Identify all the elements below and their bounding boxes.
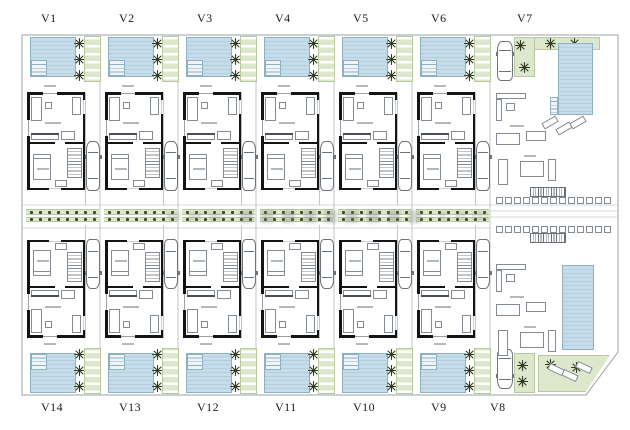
plot-microtext (278, 343, 290, 345)
deck-pergola (474, 348, 491, 394)
plot-v9 (412, 225, 490, 395)
house-floor-plan (27, 92, 85, 190)
car-rear-window (322, 251, 332, 252)
shrub-icon (30, 218, 33, 221)
room-label-microtext (193, 260, 205, 262)
pool-steps (421, 60, 437, 76)
pergola-tile (595, 197, 602, 204)
shrub-icon (75, 211, 78, 214)
car-icon (164, 239, 178, 289)
deck-pergola (84, 348, 101, 394)
kitchen-counter-top (343, 295, 371, 297)
palm-tree-icon (514, 39, 527, 52)
tv-cabinet (384, 315, 393, 333)
plot-contents (22, 225, 100, 395)
room-label-microtext (45, 306, 61, 308)
car-icon (86, 239, 100, 289)
sun-lounger (541, 115, 558, 129)
window (199, 92, 213, 95)
car-mirror (475, 155, 477, 159)
car-mirror (496, 52, 498, 56)
car-windshield (88, 277, 98, 278)
interior-wall (261, 286, 289, 288)
watermark: www.■■■■■■■■■.com (166, 206, 494, 226)
shrub-icon (162, 211, 165, 214)
plot-label-v7: V7 (517, 12, 557, 26)
coffee-table (201, 321, 208, 328)
car-rear-window (499, 71, 511, 72)
bed-pillow (345, 154, 363, 159)
pool-steps (109, 354, 125, 370)
sofa (109, 97, 120, 121)
dining-table (520, 161, 544, 177)
pergola-tile (532, 197, 539, 204)
room-label-microtext (271, 168, 283, 170)
room-label-microtext (510, 125, 524, 127)
tv-cabinet (462, 315, 471, 333)
pergola-tile (514, 197, 521, 204)
plot-contents (178, 225, 256, 395)
room-label-microtext (435, 122, 451, 124)
coffee-table (123, 321, 130, 328)
shrub-icon (30, 211, 33, 214)
car-mirror (397, 271, 399, 275)
plot-label-v6: V6 (431, 12, 471, 26)
car-icon (398, 141, 412, 191)
car-windshield (166, 152, 176, 153)
plot-microtext (278, 85, 290, 87)
room-label-microtext (524, 155, 536, 157)
deck-pergola (396, 36, 413, 82)
room-label-microtext (524, 326, 536, 328)
interior-wall (377, 286, 397, 288)
wardrobe (445, 243, 457, 250)
window (105, 120, 108, 136)
pool-steps (187, 354, 203, 370)
shrub-icon (93, 211, 96, 214)
window (433, 336, 447, 339)
wardrobe (367, 243, 379, 250)
room-label-microtext (193, 168, 205, 170)
coffee-table (201, 102, 208, 109)
car-mirror (85, 155, 87, 159)
deck-pergola (84, 36, 101, 82)
deck-pergola (240, 348, 257, 394)
coffee-table (279, 102, 286, 109)
window (105, 294, 108, 310)
room-label-microtext (45, 122, 61, 124)
shrub-icon (135, 211, 138, 214)
exterior-wall (183, 240, 186, 338)
coffee-table (435, 102, 442, 109)
interior-wall (65, 286, 85, 288)
car-rear-window (478, 178, 488, 179)
staircase (67, 252, 82, 282)
kitchen-counter-top (421, 295, 449, 297)
door-opening (49, 188, 61, 191)
window (261, 294, 264, 310)
window (277, 336, 291, 339)
room-label-microtext (349, 260, 361, 262)
shrub-icon (108, 211, 111, 214)
room-label-microtext (115, 168, 127, 170)
plot-contents (256, 225, 334, 395)
car-rear-window (244, 251, 254, 252)
deck-pergola (318, 36, 335, 82)
plot-label-v11: V11 (275, 401, 315, 415)
plot-contents (22, 35, 100, 205)
tv-cabinet (306, 315, 315, 333)
car-mirror (319, 271, 321, 275)
car-mirror (85, 271, 87, 275)
bed-pillow (423, 271, 441, 276)
exterior-wall (417, 240, 420, 338)
wardrobe (367, 180, 379, 187)
car-windshield (244, 277, 254, 278)
kitchen-counter-top (187, 295, 215, 297)
kitchen-counter-top (31, 133, 59, 135)
wardrobe (211, 243, 223, 250)
car-windshield (166, 277, 176, 278)
exterior-wall (261, 92, 264, 190)
car-rear-window (478, 251, 488, 252)
pool-steps (187, 60, 203, 76)
pool-steps (265, 60, 281, 76)
dining-table (451, 290, 465, 299)
car-icon (476, 239, 490, 289)
dining-table (217, 290, 231, 299)
plot-contents (334, 225, 412, 395)
plot-contents (256, 35, 334, 205)
bed-pillow (267, 271, 285, 276)
sofa (421, 309, 432, 333)
interior-wall (221, 286, 241, 288)
pool-steps (343, 354, 359, 370)
sofa (31, 309, 42, 333)
pool-steps (31, 354, 47, 370)
plot-microtext (356, 343, 368, 345)
house-floor-plan (105, 240, 163, 338)
bed-pillow (111, 154, 129, 159)
room-label-microtext (279, 306, 295, 308)
tv-cabinet (150, 97, 159, 115)
window (43, 336, 57, 339)
plot-v2 (100, 35, 178, 205)
plot-label-v3: V3 (197, 12, 237, 26)
window (43, 92, 57, 95)
window (355, 336, 369, 339)
plot-label-v1: V1 (41, 12, 81, 26)
plot-v3 (178, 35, 256, 205)
pergola-tile (559, 197, 566, 204)
shrub-icon (66, 211, 69, 214)
wardrobe (289, 180, 301, 187)
car-icon (320, 239, 334, 289)
pergola-tile (541, 197, 548, 204)
window (183, 294, 186, 310)
window (339, 294, 342, 310)
plot-contents (178, 35, 256, 205)
exterior-wall (417, 92, 420, 190)
dining-table (61, 131, 75, 140)
staircase (457, 252, 472, 282)
exterior-wall (27, 92, 30, 190)
kitchen-counter-top (109, 295, 137, 297)
coffee-table (45, 102, 52, 109)
plot-v7 (490, 35, 618, 210)
car-rear-window (88, 251, 98, 252)
door-opening (205, 188, 217, 191)
plot-label-v14: V14 (41, 401, 81, 415)
pool-steps (421, 354, 437, 370)
kitchen-island (506, 274, 515, 282)
tv-cabinet (228, 97, 237, 115)
sofa (421, 97, 432, 121)
window (121, 336, 135, 339)
shrub-icon (84, 211, 87, 214)
exterior-wall (339, 240, 342, 338)
exterior-wall (105, 240, 108, 338)
bed-pillow (267, 154, 285, 159)
kitchen-counter-top (343, 133, 371, 135)
dining-table (520, 332, 544, 348)
shrub-icon (39, 211, 42, 214)
wardrobe (55, 180, 67, 187)
kitchen-island (506, 103, 515, 111)
room-label-microtext (123, 122, 139, 124)
door-opening (283, 188, 295, 191)
plot-microtext (122, 85, 134, 87)
plot-contents (490, 35, 618, 210)
wardrobe (211, 180, 223, 187)
plot-microtext (200, 85, 212, 87)
car-windshield (88, 152, 98, 153)
room-label-microtext (123, 306, 139, 308)
car-icon (398, 239, 412, 289)
sofa (265, 309, 276, 333)
exterior-wall (105, 92, 108, 190)
plot-v6 (412, 35, 490, 205)
landscaped-median (26, 217, 99, 223)
plot-contents (334, 35, 412, 205)
house-floor-plan (27, 240, 85, 338)
plot-microtext (434, 343, 446, 345)
car-windshield (244, 152, 254, 153)
car-rear-window (244, 178, 254, 179)
plot-contents (412, 35, 490, 205)
sideboard (498, 159, 508, 185)
interior-wall (455, 286, 475, 288)
window (27, 120, 30, 136)
kitchen-counter-top (421, 133, 449, 135)
house-floor-plan (339, 240, 397, 338)
interior-wall (417, 286, 445, 288)
house-floor-plan (183, 92, 241, 190)
tv-cabinet (72, 315, 81, 333)
shrub-icon (144, 218, 147, 221)
plot-microtext (356, 85, 368, 87)
sofa (265, 97, 276, 121)
coffee-table (279, 321, 286, 328)
dining-table (217, 131, 231, 140)
pergola-tile (496, 197, 503, 204)
shrub-icon (48, 211, 51, 214)
shrub-icon (135, 218, 138, 221)
shrub-icon (117, 211, 120, 214)
car-windshield (400, 277, 410, 278)
dining-table (373, 290, 387, 299)
sofa (343, 309, 354, 333)
deck-pergola (474, 36, 491, 82)
plot-v14 (22, 225, 100, 395)
plot-contents (412, 225, 490, 395)
kitchen-counter-top (31, 295, 59, 297)
staircase (301, 252, 316, 282)
house-floor-plan (261, 92, 319, 190)
plot-v5 (334, 35, 412, 205)
house-floor-plan (261, 240, 319, 338)
plot-label-v5: V5 (353, 12, 393, 26)
car-mirror (241, 271, 243, 275)
shrub-icon (57, 211, 60, 214)
staircase (457, 148, 472, 178)
dining-table (61, 290, 75, 299)
coffee-table (435, 321, 442, 328)
car-rear-window (400, 251, 410, 252)
car-icon (164, 141, 178, 191)
staircase (379, 252, 394, 282)
car-icon (476, 141, 490, 191)
plot-microtext (122, 343, 134, 345)
shrub-icon (108, 218, 111, 221)
room-label-microtext (510, 296, 524, 298)
sofa (109, 309, 120, 333)
sideboard (548, 330, 556, 352)
staircase (223, 252, 238, 282)
house-floor-plan (417, 240, 475, 338)
shrub-icon (126, 211, 129, 214)
pergola-tile (577, 197, 584, 204)
dining-table (373, 131, 387, 140)
plot-contents (100, 225, 178, 395)
kitchen-counter-top (187, 133, 215, 135)
coffee-table (357, 321, 364, 328)
car-icon (242, 141, 256, 191)
room-label-microtext (427, 260, 439, 262)
window (27, 294, 30, 310)
window (183, 120, 186, 136)
plot-microtext (44, 343, 56, 345)
plot-label-v2: V2 (119, 12, 159, 26)
interior-wall (27, 142, 55, 144)
interior-wall (105, 142, 133, 144)
coffee-table (357, 102, 364, 109)
staircase (145, 252, 160, 282)
staircase (301, 148, 316, 178)
plot-v10 (334, 225, 412, 395)
plot-v11 (256, 225, 334, 395)
window (417, 120, 420, 136)
room-label-microtext (357, 306, 373, 308)
bed-pillow (33, 271, 51, 276)
plot-label-v4: V4 (275, 12, 315, 26)
plot-microtext (44, 85, 56, 87)
deck-pergola (240, 36, 257, 82)
sofa (343, 97, 354, 121)
car-windshield (400, 152, 410, 153)
room-label-microtext (357, 122, 373, 124)
palm-tree-icon (518, 61, 531, 74)
pool-steps (343, 60, 359, 76)
shrub-icon (57, 218, 60, 221)
dining-table (139, 290, 153, 299)
coffee-table (45, 321, 52, 328)
car-mirror (163, 271, 165, 275)
wardrobe (445, 180, 457, 187)
kitchen-counter (496, 99, 502, 121)
car-windshield (478, 277, 488, 278)
plot-v1 (22, 35, 100, 205)
staircase (223, 148, 238, 178)
house-floor-plan (105, 92, 163, 190)
exterior-wall (339, 92, 342, 190)
car-windshield (499, 50, 511, 51)
plot-contents (100, 35, 178, 205)
window (339, 120, 342, 136)
car-mirror (319, 155, 321, 159)
kitchen-counter-top (109, 133, 137, 135)
shrub-icon (162, 218, 165, 221)
landscaped-median (26, 209, 99, 215)
interior-wall (221, 142, 241, 144)
dining-table (139, 131, 153, 140)
car-windshield (322, 277, 332, 278)
window (277, 92, 291, 95)
interior-wall (377, 142, 397, 144)
shrub-icon (84, 218, 87, 221)
car-icon (242, 239, 256, 289)
sofa (31, 97, 42, 121)
interior-wall (143, 286, 163, 288)
dining-table (295, 290, 309, 299)
coffee-table (123, 102, 130, 109)
shrub-icon (126, 218, 129, 221)
wardrobe (133, 243, 145, 250)
shrub-icon (144, 211, 147, 214)
interior-wall (299, 286, 319, 288)
pergola-tile (586, 197, 593, 204)
car-rear-window (166, 178, 176, 179)
shrub-icon (117, 218, 120, 221)
interior-wall (65, 142, 85, 144)
site-plan: www.■■■■■■■■■.com V1V14V2V13V3V12V4V11V5… (0, 0, 630, 430)
room-label-microtext (201, 122, 217, 124)
plot-v4 (256, 35, 334, 205)
pergola-tile (523, 197, 530, 204)
plot-label-v12: V12 (197, 401, 237, 415)
room-label-microtext (435, 306, 451, 308)
car-rear-window (322, 178, 332, 179)
window (199, 336, 213, 339)
interior-wall (261, 142, 289, 144)
exterior-wall (183, 92, 186, 190)
wardrobe (55, 243, 67, 250)
deck-pergola (162, 348, 179, 394)
plot-label-v13: V13 (119, 401, 159, 415)
staircase (379, 148, 394, 178)
window (433, 92, 447, 95)
plot-v13 (100, 225, 178, 395)
